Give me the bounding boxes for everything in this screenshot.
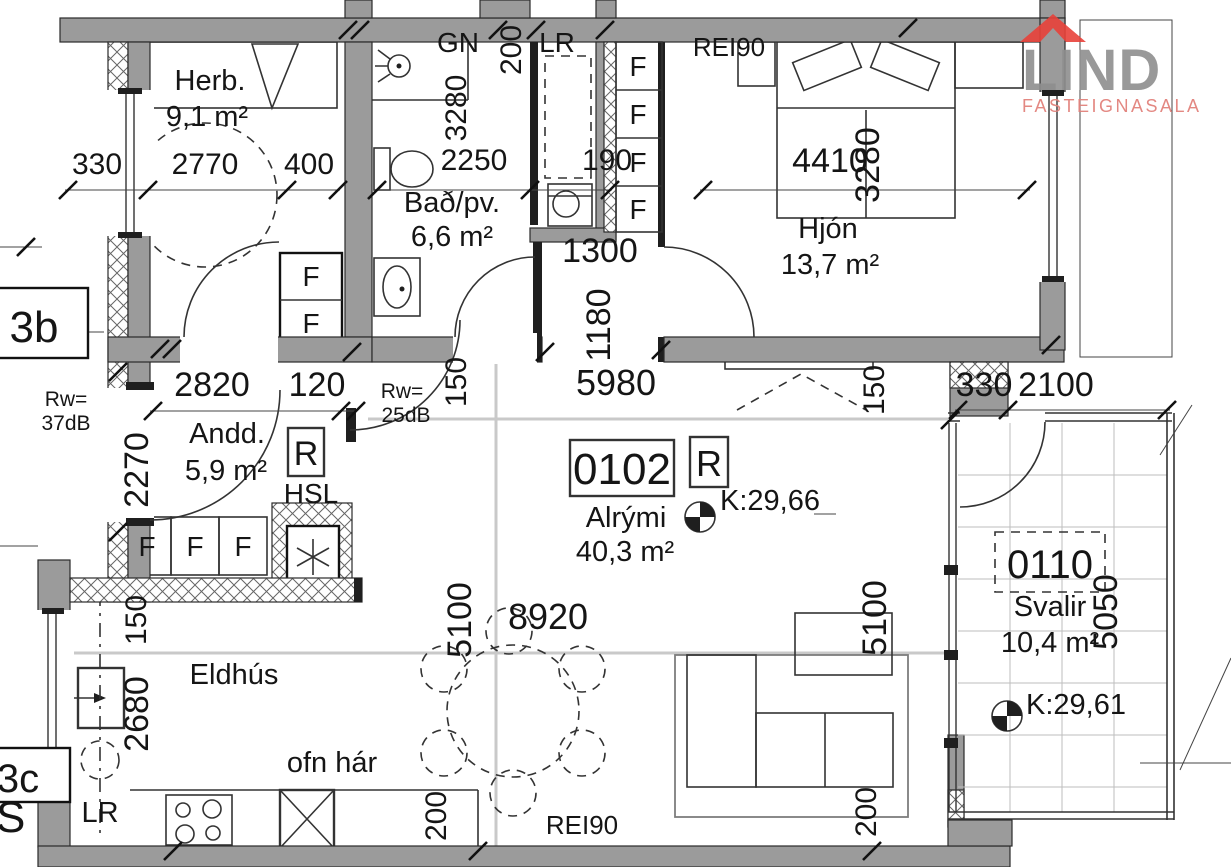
neighbor-label-3b: 3b [10, 303, 59, 352]
label-lr-kitchen: LR [81, 797, 118, 829]
label-f: F [234, 531, 251, 562]
dim-herb-width: 2770 [172, 148, 239, 181]
label-hsl: HSL [284, 478, 338, 509]
unit-category: R [696, 443, 722, 484]
label-f: F [186, 531, 203, 562]
dim-hall-depth: 1180 [580, 288, 618, 361]
dim-alrymi-height: 5100 [441, 582, 479, 658]
chair [559, 730, 605, 776]
nightstand [955, 42, 1023, 88]
dim-150: 150 [120, 595, 153, 645]
dim-alrymi-height: 5100 [856, 580, 894, 656]
pillow [793, 39, 862, 90]
bad-door-arc [455, 257, 535, 337]
dim-andd-width: 2820 [174, 366, 250, 404]
dim-bad-height: 3280 [440, 75, 473, 142]
dim-200: 200 [850, 787, 883, 837]
dim-bad-width: 2250 [441, 144, 508, 177]
pillow [871, 39, 940, 90]
alrymi-furniture [421, 360, 908, 817]
logo-brand: LIND [1022, 38, 1161, 103]
label-rw25-2: 25dB [381, 404, 430, 427]
room-area-bad: 6,6 m² [411, 221, 494, 253]
label-ofn-har: ofn hár [287, 747, 378, 779]
room-label-eldhus: Eldhús [190, 659, 279, 691]
dim-200: 200 [420, 791, 453, 841]
label-rw37-1: Rw= [45, 388, 88, 411]
label-f: F [629, 194, 646, 225]
dim-alrymi-width: 8920 [508, 596, 588, 637]
balcony-bottom-rail [948, 812, 1174, 819]
floor-plan-drawing: Herb. 9,1 m² 330 2770 400 GN 3280 2250 B… [0, 0, 1231, 867]
label-r-andd: R [294, 435, 319, 473]
label-f: F [629, 147, 646, 178]
room-area-svalir: 10,4 m² [1001, 627, 1100, 659]
label-rw25-1: Rw= [381, 380, 424, 403]
label-f: F [302, 308, 319, 339]
unit-area: 40,3 m² [576, 536, 675, 568]
svalir-level: K:29,61 [1026, 689, 1126, 721]
dim-hjon-height: 3280 [849, 127, 887, 203]
floor-plan-page: Herb. 9,1 m² 330 2770 400 GN 3280 2250 B… [0, 0, 1231, 867]
dim-eldhus-height: 2680 [118, 676, 156, 752]
label-f: F [629, 51, 646, 82]
room-label-herb: Herb. [175, 65, 246, 97]
dim-150: 150 [440, 357, 473, 407]
herb-bad-wall [345, 42, 372, 337]
room-area-herb: 9,1 m² [166, 101, 249, 133]
room-label-hjon: Hjón [798, 213, 858, 245]
balcony-right-rail [1167, 413, 1174, 820]
hjon-bottom-wall [664, 337, 1064, 362]
room-label-bad: Bað/pv. [404, 187, 500, 219]
dim-svalir-left: 330 [956, 366, 1013, 404]
andd-eldhus-wall [70, 578, 362, 602]
label-rei90-bottom: REI90 [546, 810, 618, 840]
svalir-number: 0110 [1007, 543, 1093, 587]
label-f: F [629, 99, 646, 130]
label-f: F [302, 261, 319, 292]
dim-hall-width: 1300 [562, 232, 638, 270]
unit-name: Alrými [586, 502, 667, 534]
dim-main-width: 5980 [576, 362, 656, 403]
break-line [1140, 658, 1231, 770]
label-rw37-2: 37dB [41, 412, 90, 435]
dim-lr-width: 200 [495, 25, 528, 75]
dim-herb-right: 400 [284, 148, 334, 181]
level-marker-svalir [992, 701, 1022, 731]
logo: LIND FASTEIGNASALA [1020, 14, 1202, 116]
herb-door-arc [184, 242, 279, 337]
room-area-hjon: 13,7 m² [781, 249, 880, 281]
dim-svalir-height: 5050 [1087, 574, 1125, 650]
room-label-andd: Andd. [189, 418, 265, 450]
room-area-andd: 5,9 m² [185, 455, 268, 487]
dim-svalir-width: 2100 [1018, 366, 1094, 404]
balcony-door-arc [960, 422, 1045, 507]
chair [421, 730, 467, 776]
label-rei90-top: REI90 [693, 32, 765, 62]
texts: Herb. 9,1 m² 330 2770 400 GN 3280 2250 B… [0, 25, 1126, 842]
unit-level: K:29,66 [720, 485, 820, 517]
label-gn: GN [437, 27, 479, 58]
hjon-door-arc [664, 247, 754, 337]
dim-150: 150 [858, 365, 891, 415]
unit-number: 0102 [573, 445, 671, 494]
dim-andd-jamb: 120 [289, 366, 346, 404]
label-f: F [138, 531, 155, 562]
dim-andd-height: 2270 [118, 432, 156, 508]
lr-closet-fixtures [545, 56, 592, 226]
room-label-svalir: Svalir [1014, 591, 1087, 623]
label-lr-top: LR [539, 27, 575, 58]
logo-tagline: FASTEIGNASALA [1022, 96, 1202, 116]
dim-herb-left: 330 [72, 148, 122, 181]
dim-lr-wall: 190 [582, 144, 632, 177]
neighbor-label-s: S [0, 793, 25, 842]
bottom-wall [38, 846, 1010, 867]
